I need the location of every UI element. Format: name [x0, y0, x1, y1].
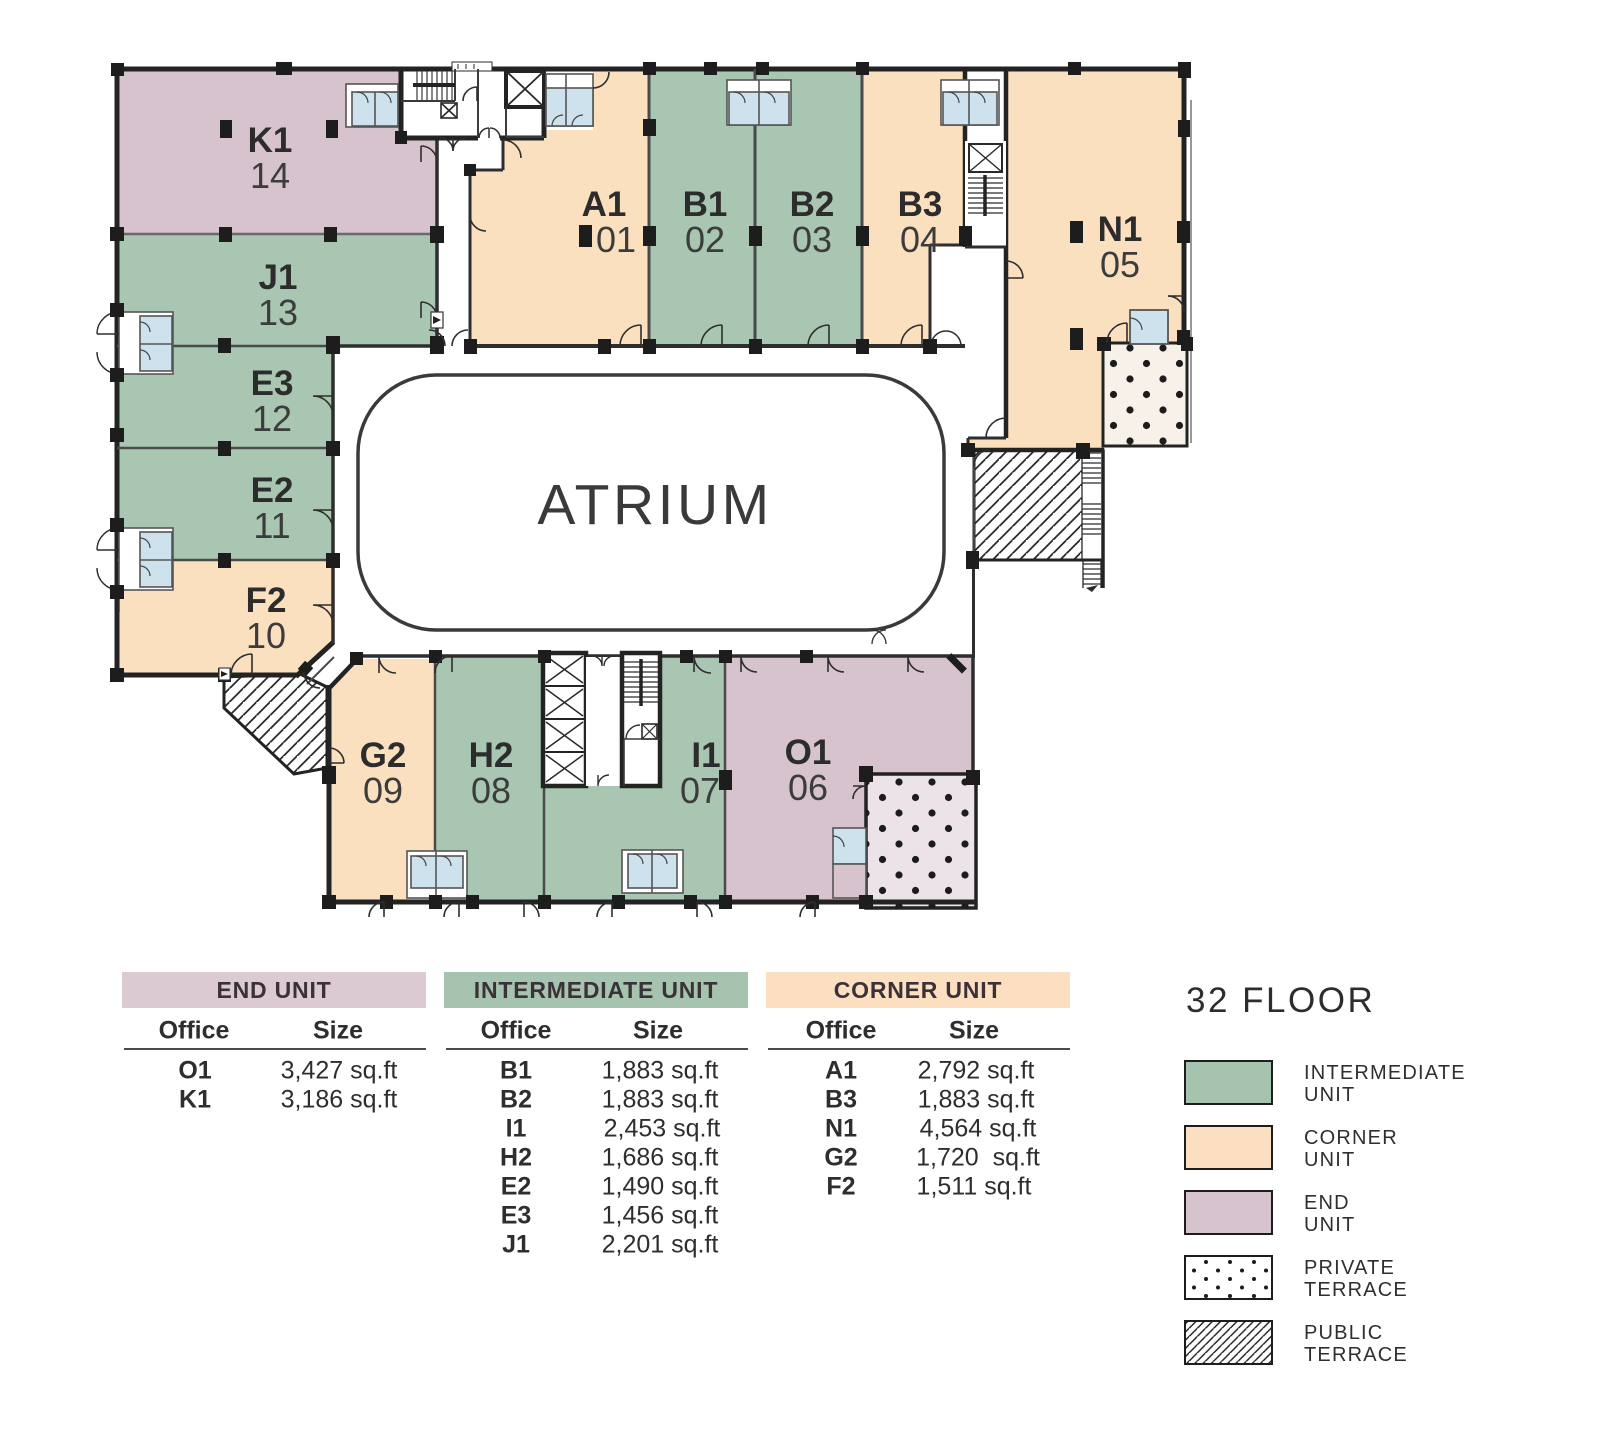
- svg-text:14: 14: [250, 155, 290, 196]
- svg-text:01: 01: [596, 219, 636, 260]
- svg-text:04: 04: [900, 219, 940, 260]
- svg-text:11: 11: [253, 505, 290, 546]
- svg-text:12: 12: [252, 398, 292, 439]
- svg-text:07: 07: [680, 770, 720, 811]
- svg-text:08: 08: [471, 770, 511, 811]
- svg-text:05: 05: [1100, 244, 1140, 285]
- svg-text:02: 02: [685, 219, 725, 260]
- svg-text:10: 10: [246, 615, 286, 656]
- svg-text:13: 13: [258, 292, 298, 333]
- svg-text:09: 09: [363, 770, 403, 811]
- svg-text:06: 06: [788, 767, 828, 808]
- svg-text:03: 03: [792, 219, 832, 260]
- svg-text:ATRIUM: ATRIUM: [537, 473, 772, 537]
